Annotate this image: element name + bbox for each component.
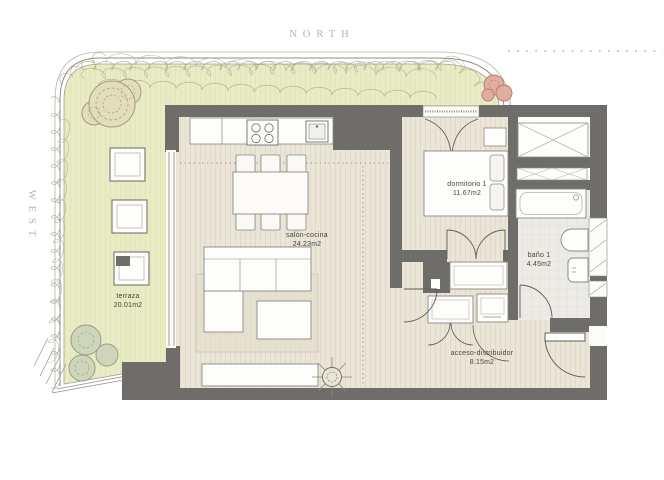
- wardrobe-switch-box: [431, 279, 440, 289]
- room-label-terraza: terraza: [116, 293, 139, 300]
- kitchen-counter: [190, 118, 333, 145]
- bedside-table: [484, 128, 506, 146]
- coffee-table: [257, 301, 311, 339]
- toilet-icon: [568, 258, 588, 282]
- stove-icon: [247, 120, 278, 145]
- living-set: [196, 247, 318, 386]
- room-label-dormitorio: dormitorio 1: [447, 181, 486, 188]
- planter: [110, 148, 145, 181]
- room-area-acceso: 8.15m2: [470, 359, 494, 366]
- railing-hatch-marks: [34, 338, 66, 392]
- room-area-bano: 4.45m2: [527, 261, 551, 268]
- pillow: [490, 155, 504, 181]
- planter: [112, 200, 147, 233]
- room-area-terraza: 20.01m2: [114, 302, 143, 309]
- bathtub-icon: [516, 189, 586, 218]
- room-label-bano: baño 1: [528, 252, 551, 259]
- plant-icon: [312, 357, 352, 397]
- right-wall-windows: [589, 218, 607, 346]
- sink-icon: [306, 121, 328, 142]
- dining-table: [233, 172, 308, 214]
- room-label-acceso: acceso-distribuidor: [451, 350, 514, 357]
- room-label-salon: salón-cocina: [286, 232, 328, 239]
- elevator-shaft: [518, 123, 588, 157]
- compass-north-label: NORTH: [289, 29, 355, 40]
- stairs-hatch: [517, 168, 587, 180]
- planter: [114, 252, 149, 285]
- window: [589, 218, 607, 276]
- floor-plan-drawing: terraza 20.01m2 salón-cocina 24.23m2 dor…: [0, 0, 664, 480]
- room-area-dormitorio: 11.67m2: [453, 190, 481, 197]
- entrance-opening: [589, 326, 607, 346]
- dining-set: [233, 155, 308, 230]
- red-bush-icon: [482, 75, 512, 101]
- pillow: [490, 184, 504, 210]
- washbasin-icon: [561, 229, 588, 251]
- floor-plan-page: terraza 20.01m2 salón-cocina 24.23m2 dor…: [0, 0, 664, 480]
- entrance-door-leaf: [545, 333, 585, 341]
- room-area-salon: 24.23m2: [293, 241, 322, 248]
- tv-bench: [202, 364, 318, 386]
- terrace-glass-door: [166, 150, 176, 348]
- compass-west-label: WEST: [26, 190, 37, 243]
